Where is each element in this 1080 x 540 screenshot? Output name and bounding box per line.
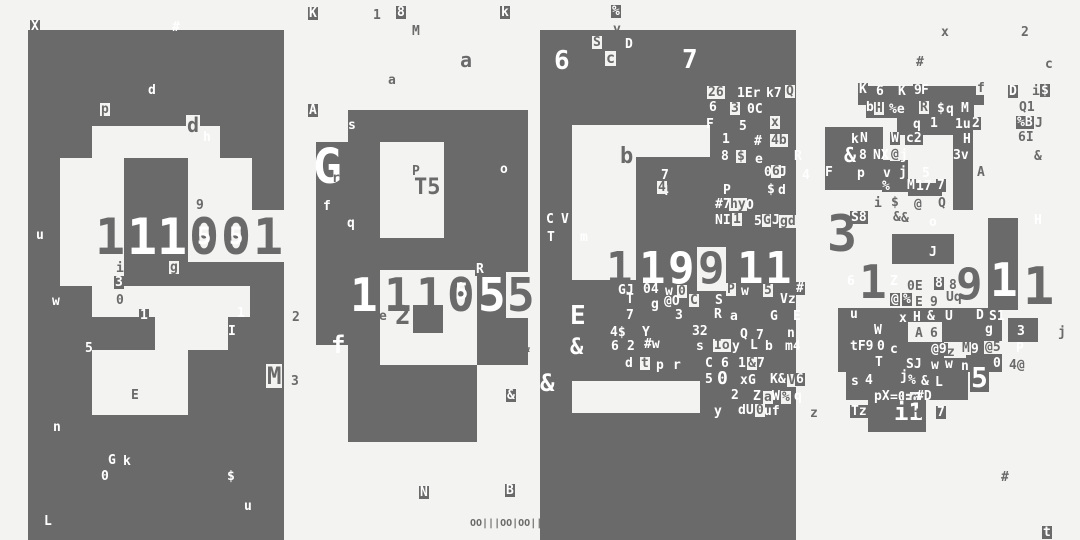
glitch-char: @9 — [930, 343, 948, 356]
glitch-char: 0C — [747, 103, 763, 116]
glitch-char: 5 — [763, 284, 773, 297]
glitch-char: G — [107, 454, 117, 467]
glitch-char: %e — [889, 103, 905, 116]
glitch-char: Io — [713, 339, 731, 352]
glitch-char: # — [795, 282, 805, 295]
glitch-char: 4@ — [1009, 359, 1025, 372]
glitch-char: 5 — [704, 373, 714, 386]
glitch-char: Z — [890, 275, 898, 288]
glitch-char: R — [713, 308, 723, 321]
glitch-char: D — [976, 309, 984, 322]
glitch-char: Z — [753, 390, 761, 403]
panel-2-block — [444, 142, 528, 270]
glitch-char: e — [379, 310, 387, 323]
glitch-char: G — [748, 374, 756, 387]
glitch-char: R — [475, 263, 485, 276]
glitch-char: A — [976, 166, 986, 179]
glitch-char: 26 — [707, 86, 725, 99]
glitch-char: 5 — [754, 215, 762, 228]
glitch-char: a — [460, 50, 472, 70]
glitch-char: H — [963, 133, 971, 146]
glitch-char: K — [898, 85, 906, 98]
glitch-char: W — [873, 324, 883, 337]
glitch-char: U — [944, 310, 954, 323]
glitch-char: 3 — [730, 102, 740, 115]
glitch-char: Q — [785, 85, 795, 98]
glitch-char: 5 — [739, 120, 747, 133]
glitch-char: $ — [767, 183, 775, 196]
glitch-char: O — [746, 199, 754, 212]
glitch-char: # — [754, 135, 762, 148]
glitch-char: # — [172, 21, 180, 34]
glitch-char: 3 — [114, 276, 124, 289]
glitch-char: h — [203, 131, 211, 144]
glitch-char: 6 — [554, 48, 570, 74]
glitch-char: 9 — [930, 296, 938, 309]
glitch-char: $ — [1040, 84, 1050, 97]
glitch-char: r — [332, 172, 340, 185]
glitch-char: 7 — [757, 357, 765, 370]
glitch-char: 2 — [1021, 26, 1029, 39]
glitch-char: M — [906, 179, 916, 192]
big-digit: 1 — [157, 212, 187, 262]
glitch-char: 04 — [642, 283, 660, 296]
glitch-char: c — [889, 343, 899, 356]
glitch-char: D — [1008, 85, 1018, 98]
panel-1-cutout — [92, 126, 220, 158]
glitch-char: 2 — [730, 389, 740, 402]
glitch-char: 6I — [1018, 131, 1034, 144]
glitch-char: J — [779, 166, 787, 179]
glitch-char: dU — [738, 404, 754, 417]
glitch-char: S — [592, 36, 602, 49]
glitch-char: 1 — [929, 117, 939, 130]
glitch-char: u — [849, 308, 859, 321]
glitch-char: E — [570, 303, 586, 329]
glitch-char: i — [874, 197, 882, 210]
glitch-char: R — [919, 101, 929, 114]
panel-1-cutout — [92, 350, 188, 415]
glitch-char: & — [921, 375, 929, 388]
glitch-char: 5 — [229, 224, 243, 248]
glitch-char: k7 — [766, 87, 782, 100]
glitch-char: w — [741, 285, 749, 298]
glitch-char: 8 — [859, 149, 867, 162]
panel-4-block — [892, 234, 954, 264]
glitch-char: 7 — [682, 47, 698, 73]
glitch-char: & — [844, 145, 856, 165]
glitch-char: y — [613, 23, 621, 36]
glitch-char: 3 — [675, 309, 683, 322]
glitch-char: 5 — [970, 364, 989, 392]
glitch-char: 1 — [732, 213, 742, 226]
glitch-char: $ — [736, 150, 746, 163]
glitch-char: s — [348, 119, 356, 132]
glitch-char: 1 — [237, 307, 245, 320]
glitch-char: d — [148, 84, 156, 97]
glitch-char: 1 — [738, 357, 746, 370]
glitch-char: 3 — [1017, 325, 1025, 338]
glitch-char: K& — [770, 373, 786, 386]
glitch-char: @ — [890, 148, 900, 161]
glitch-canvas: OO|||OO|OO||| OO||O|O|OO||OO 11100111105… — [0, 0, 1080, 540]
panel-2-block — [348, 110, 528, 142]
glitch-char: a — [730, 310, 738, 323]
glitch-char: W — [890, 132, 900, 145]
glitch-char: F — [706, 118, 714, 131]
glitch-char: C — [546, 213, 554, 226]
glitch-char: #w — [644, 338, 660, 351]
glitch-char: E — [793, 310, 801, 323]
glitch-char: q — [945, 103, 955, 116]
glitch-char: 6 — [795, 373, 805, 386]
glitch-char: L — [43, 515, 53, 528]
glitch-char: & — [747, 357, 757, 370]
glitch-char: SJ — [906, 358, 922, 371]
glitch-char: j — [1058, 326, 1066, 339]
glitch-char: NI — [715, 214, 731, 227]
glitch-char: M — [266, 364, 282, 388]
glitch-char: M — [961, 342, 971, 355]
glitch-char: 8 — [934, 277, 944, 290]
glitch-char: % — [781, 391, 791, 404]
glitch-char: I — [228, 325, 236, 338]
glitch-char: 5 — [197, 224, 211, 248]
glitch-char: %B — [1016, 116, 1034, 129]
glitch-char: r — [673, 359, 681, 372]
big-digit: 1 — [1023, 261, 1054, 313]
glitch-char: q — [347, 217, 355, 230]
glitch-char: 2 — [292, 311, 300, 324]
glitch-char: n — [52, 421, 62, 434]
glitch-char: i — [1032, 85, 1040, 98]
glitch-char: & — [506, 389, 516, 402]
glitch-char: H — [913, 311, 921, 324]
glitch-char: m — [580, 231, 588, 244]
glitch-char: P — [1016, 342, 1024, 355]
glitch-char: T5 — [414, 177, 441, 199]
panel-3-cutout — [636, 125, 710, 157]
glitch-char: # — [916, 56, 924, 69]
glitch-char: 5 — [455, 282, 468, 304]
glitch-char: M — [412, 25, 420, 38]
glitch-char: $ — [227, 470, 235, 483]
glitch-char: K — [858, 83, 868, 96]
glitch-char: T — [874, 356, 884, 369]
glitch-char: 6 — [876, 85, 884, 98]
glitch-char: G — [770, 310, 778, 323]
glitch-char: % — [611, 5, 621, 18]
barcode-strip-dark-segment: OO|||OO|OO||| — [470, 519, 548, 529]
glitch-char: 0 — [717, 370, 728, 388]
glitch-char: B — [505, 484, 515, 497]
glitch-char: 5 — [85, 342, 93, 355]
glitch-char: Q1 — [1019, 101, 1035, 114]
glitch-char: 3 — [291, 375, 299, 388]
glitch-char: C — [689, 294, 699, 307]
glitch-char: 0 — [100, 470, 110, 483]
glitch-char: NX — [873, 149, 889, 162]
glitch-char: 2 — [395, 303, 411, 329]
glitch-char: s — [696, 340, 704, 353]
glitch-char: P — [726, 283, 736, 296]
glitch-char: q — [794, 390, 802, 403]
glitch-char: s — [851, 375, 859, 388]
glitch-char: & — [901, 212, 909, 225]
glitch-char: R — [794, 150, 802, 163]
glitch-char: & — [522, 342, 530, 355]
glitch-char: J — [928, 246, 938, 259]
glitch-char: p — [100, 103, 110, 116]
glitch-char: 4 — [864, 374, 874, 387]
big-digit: 1 — [416, 272, 444, 318]
glitch-char: @ — [914, 198, 922, 211]
glitch-char: # — [1001, 471, 1009, 484]
big-digit: 1 — [253, 212, 283, 262]
glitch-char: p — [857, 167, 865, 180]
glitch-char: t — [640, 357, 650, 370]
glitch-char: 1Er — [737, 87, 760, 100]
glitch-char: x — [898, 312, 908, 325]
glitch-char: 0 — [116, 294, 124, 307]
glitch-char: $ — [937, 102, 945, 115]
glitch-char: n — [961, 360, 969, 373]
glitch-char: A — [308, 104, 318, 117]
glitch-char: w — [52, 295, 60, 308]
glitch-char: t — [1042, 526, 1052, 539]
glitch-char: N — [419, 486, 429, 499]
glitch-char: 4 — [802, 169, 810, 182]
glitch-char: t — [914, 408, 922, 421]
glitch-char: uf — [764, 405, 780, 418]
big-digit: 5 — [506, 272, 536, 318]
glitch-char: L — [750, 339, 758, 352]
glitch-char: i — [116, 262, 124, 275]
glitch-char: x — [941, 26, 949, 39]
glitch-char: j — [900, 149, 908, 162]
glitch-char: H — [874, 102, 884, 115]
glitch-char: b — [620, 146, 633, 168]
glitch-char: 7 — [936, 179, 946, 192]
glitch-char: j — [899, 166, 907, 179]
glitch-char: pX — [874, 390, 890, 403]
glitch-char: 1 — [373, 9, 381, 22]
glitch-char: c2 — [905, 132, 923, 145]
glitch-char: X — [868, 405, 876, 418]
glitch-char: tF9 — [850, 340, 873, 353]
glitch-char: 0 — [876, 340, 886, 353]
glitch-char: z — [810, 407, 818, 420]
glitch-char: g — [651, 298, 659, 311]
glitch-char: E — [915, 296, 923, 309]
glitch-char: & — [927, 310, 935, 323]
glitch-char: f — [976, 82, 986, 95]
glitch-char: 32 — [691, 325, 709, 338]
big-digit: 1 — [127, 212, 157, 262]
glitch-char: 6 — [709, 101, 717, 114]
glitch-char: w — [930, 359, 940, 372]
glitch-char: g — [984, 323, 994, 336]
glitch-char: w — [944, 358, 954, 371]
glitch-char: 6 — [930, 327, 938, 340]
panel-2-block — [380, 365, 477, 442]
glitch-char: S — [714, 294, 724, 307]
glitch-char: K — [308, 7, 318, 20]
glitch-char: 2 — [789, 135, 797, 148]
glitch-char: p — [656, 359, 664, 372]
glitch-char: & — [1034, 150, 1042, 163]
glitch-char: o — [929, 216, 937, 229]
glitch-char: @5 — [984, 341, 1002, 354]
glitch-char: c — [1045, 58, 1053, 71]
glitch-char: P — [723, 184, 731, 197]
glitch-char: S8 — [850, 211, 868, 224]
big-digit: 1 — [95, 212, 125, 262]
big-digit: 1 — [350, 272, 378, 318]
glitch-char: y — [732, 340, 740, 353]
glitch-char: 4b — [770, 134, 788, 147]
glitch-char: T — [625, 293, 635, 306]
glitch-char: q — [913, 118, 921, 131]
glitch-char: V — [561, 213, 569, 226]
big-digit: 9 — [697, 247, 726, 291]
glitch-char: A — [915, 327, 923, 340]
glitch-char: 2 — [971, 117, 981, 130]
glitch-char: b — [765, 340, 773, 353]
glitch-char: f — [323, 200, 331, 213]
glitch-char: f — [331, 333, 345, 357]
glitch-char: & — [570, 337, 583, 359]
big-digit: 1 — [990, 257, 1018, 303]
panel-3-cutout — [572, 381, 700, 413]
glitch-char: u — [243, 500, 253, 513]
glitch-char: k — [500, 6, 510, 19]
glitch-char: 7 — [936, 406, 946, 419]
glitch-char: x — [770, 116, 780, 129]
glitch-char: k — [123, 455, 131, 468]
glitch-char: F — [921, 84, 929, 97]
glitch-char: c — [605, 51, 616, 66]
glitch-char: @O — [664, 295, 680, 308]
glitch-char: $ — [891, 196, 899, 209]
glitch-char: M — [961, 102, 969, 115]
glitch-char: L — [935, 376, 943, 389]
glitch-char: 9 — [196, 199, 204, 212]
glitch-char: b — [866, 101, 874, 114]
glitch-char: D — [625, 38, 633, 51]
glitch-char: a — [388, 74, 396, 87]
glitch-char: 2 — [627, 340, 635, 353]
glitch-char: & — [540, 371, 554, 395]
glitch-char: % — [902, 293, 912, 306]
glitch-char: 1 — [721, 133, 731, 146]
panel-2-block — [380, 238, 444, 270]
glitch-char: 8 — [396, 6, 406, 19]
glitch-char: e — [755, 153, 763, 166]
glitch-char: gd — [779, 215, 797, 228]
glitch-char: Q — [938, 197, 946, 210]
glitch-char: W — [772, 390, 780, 403]
glitch-char: d — [186, 115, 200, 135]
glitch-char: m4 — [785, 340, 801, 353]
glitch-char: 6 — [847, 275, 855, 288]
glitch-char: T — [547, 231, 555, 244]
glitch-char: Vz — [780, 293, 796, 306]
glitch-char: y — [714, 405, 722, 418]
big-digit: 5 — [477, 272, 507, 318]
glitch-char: 1 — [139, 309, 149, 322]
glitch-char: Tz — [850, 405, 868, 418]
glitch-char: 7 — [626, 309, 634, 322]
glitch-char: d — [625, 357, 633, 370]
glitch-char: % — [882, 180, 890, 193]
glitch-char: 4 — [657, 181, 667, 194]
glitch-char: 17 — [916, 180, 932, 193]
panel-1-cutout — [155, 317, 228, 350]
glitch-char: H — [1034, 214, 1042, 227]
glitch-char: d — [778, 184, 786, 197]
glitch-char: C — [705, 357, 713, 370]
glitch-char: Q — [740, 328, 748, 341]
big-digit: 1 — [859, 259, 887, 305]
glitch-char: o — [499, 163, 509, 176]
glitch-char: F — [825, 166, 833, 179]
glitch-char: 8 — [721, 150, 729, 163]
glitch-char: Uq — [946, 291, 962, 304]
glitch-char: % — [907, 374, 917, 387]
glitch-char: 3v — [953, 149, 969, 162]
glitch-char: g — [169, 261, 179, 274]
glitch-char: N — [859, 132, 869, 145]
glitch-char: X — [30, 20, 40, 33]
glitch-char: E — [131, 389, 139, 402]
glitch-char: 4$ — [610, 326, 626, 339]
glitch-char: J — [1035, 117, 1043, 130]
glitch-char: 0 — [992, 357, 1002, 370]
glitch-char: 1u — [955, 118, 971, 131]
glitch-char: hy — [729, 198, 747, 211]
glitch-char: @ — [890, 293, 900, 306]
glitch-char: u — [36, 229, 44, 242]
glitch-char: 6 — [611, 340, 619, 353]
